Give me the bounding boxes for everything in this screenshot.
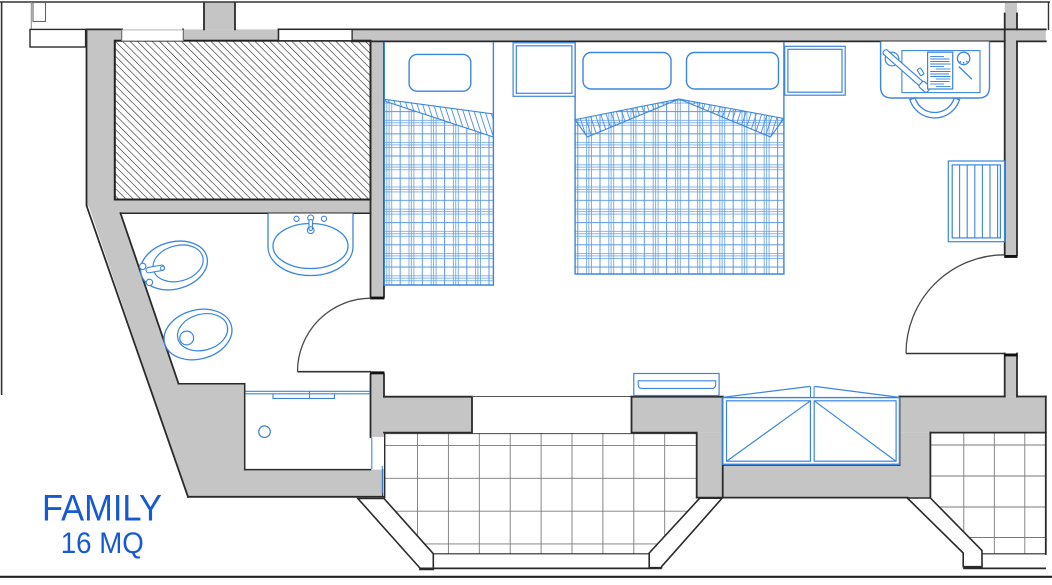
- svg-text:16 MQ: 16 MQ: [61, 527, 144, 560]
- svg-text:FAMILY: FAMILY: [42, 487, 162, 529]
